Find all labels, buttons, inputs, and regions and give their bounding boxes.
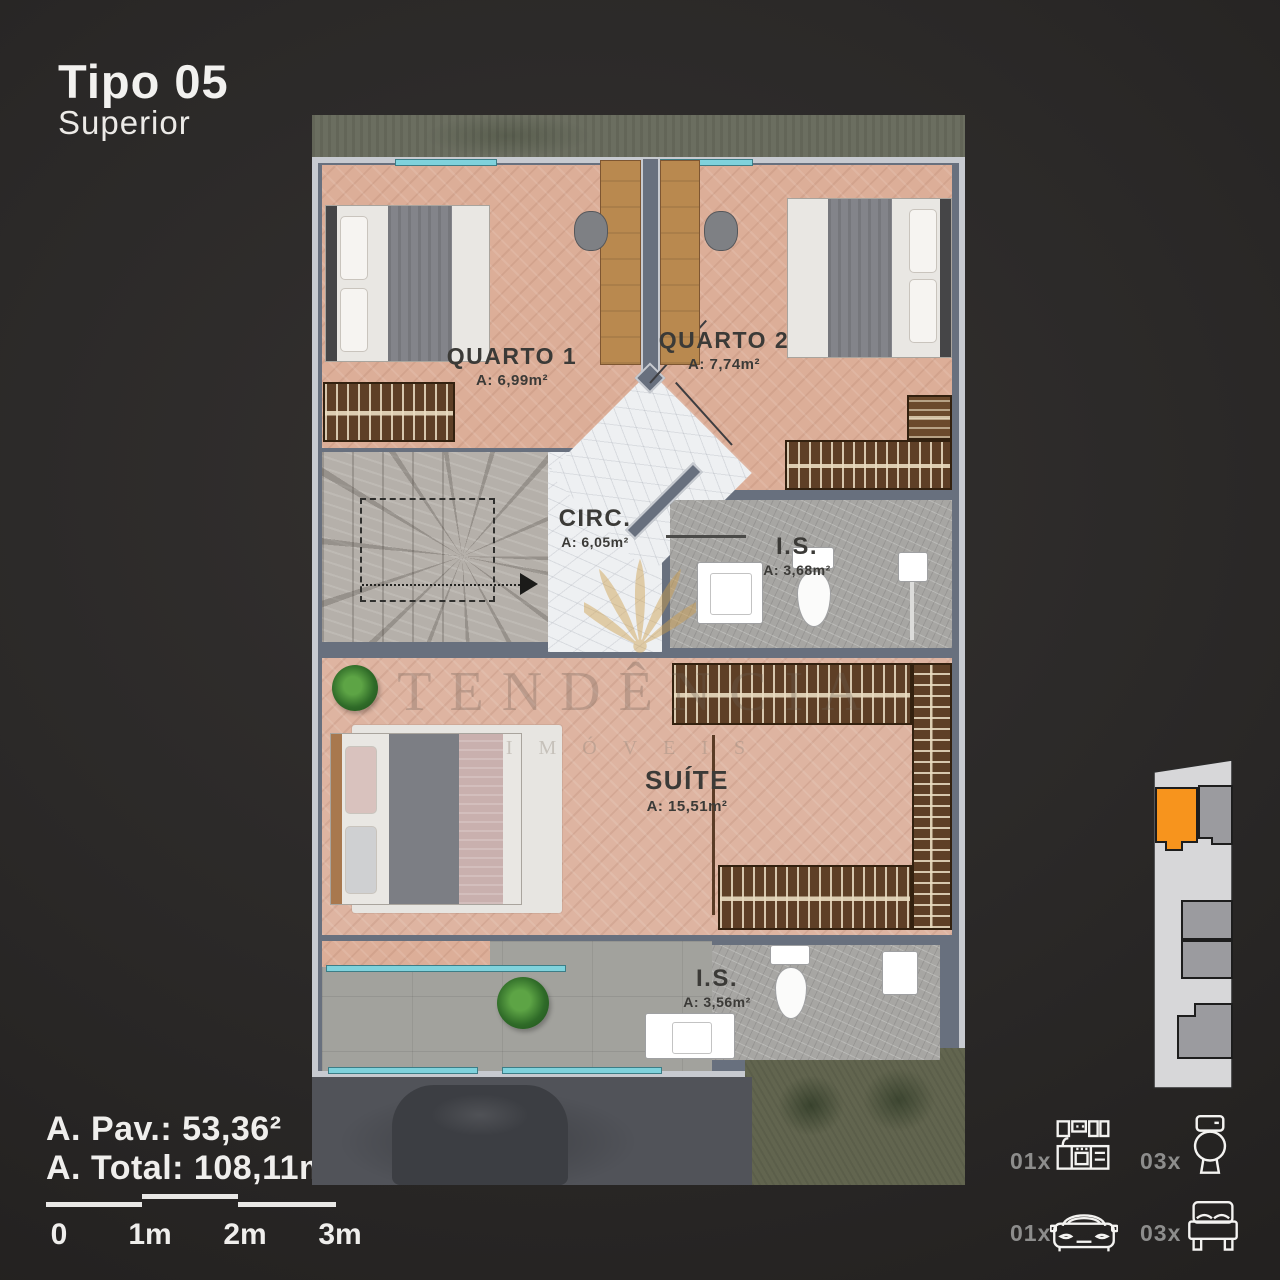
area-total: A. Total: 108,11m² [46, 1149, 342, 1188]
room-label-quarto1: QUARTO 1 A: 6,99m² [422, 343, 602, 389]
room-label-is-lower: I.S. A: 3,56m² [657, 965, 777, 1010]
bed-headboard [940, 199, 951, 357]
kitchen-icon [1056, 1118, 1110, 1172]
floor-plan: TENDÊNCIA IMÓVEIS QUARTO 1 A: 6,99m² QUA… [312, 115, 965, 1185]
key-plan [1140, 754, 1240, 1094]
kitchen-count: 01x [1010, 1148, 1051, 1175]
toilet-icon [1190, 1114, 1230, 1176]
bed-headboard [326, 206, 337, 361]
shower-is-lower [882, 951, 918, 995]
bed-pillow [340, 288, 368, 352]
shelf-quarto2 [907, 395, 952, 440]
watermark-shell-icon [584, 543, 696, 655]
shower-pole [910, 582, 914, 640]
area-summary: A. Pav.: 53,36² A. Total: 108,11m² [46, 1110, 342, 1188]
key-plan-unit [1182, 941, 1232, 978]
room-label-circ: CIRC. A: 6,05m² [535, 505, 655, 550]
window-top-left [395, 159, 497, 166]
stairs [322, 452, 548, 642]
area-pavement: A. Pav.: 53,36² [46, 1110, 342, 1149]
grass-patch-bottom-right [745, 1048, 965, 1185]
scale-segment [238, 1202, 336, 1207]
scale-label-0: 0 [37, 1218, 81, 1252]
plant-balcony [497, 977, 549, 1029]
plan-floor-subtitle: Superior [58, 106, 229, 140]
grass-strip-top [312, 115, 965, 157]
toilet-bowl [797, 571, 831, 627]
scale-label-2m: 2m [223, 1218, 267, 1252]
sink-is-lower [645, 1013, 735, 1059]
scale-bar: 0 1m 2m 3m [44, 1192, 364, 1256]
window-balcony-right [502, 1067, 662, 1074]
watermark-brand-name: TENDÊNCIA [312, 660, 965, 724]
sink-basin [672, 1022, 712, 1054]
toilet-tank [770, 945, 810, 965]
page-title-block: Tipo 05 Superior [58, 58, 229, 140]
toilet-bowl [775, 967, 807, 1019]
bed-pillow [345, 826, 377, 894]
page: Tipo 05 Superior [0, 0, 1280, 1280]
plan-type-title: Tipo 05 [58, 58, 229, 106]
car-icon [1050, 1204, 1118, 1254]
chair-quarto2 [704, 211, 738, 251]
key-plan-unit [1182, 901, 1232, 939]
key-plan-unit-highlighted [1156, 788, 1197, 850]
key-plan-unit [1199, 786, 1232, 844]
room-label-is-upper: I.S. A: 3,68m² [737, 533, 857, 578]
bed-quarto1 [325, 205, 490, 362]
window-suite-balcony [326, 965, 566, 972]
wardrobe-quarto1 [323, 382, 455, 442]
shower-is-upper [898, 552, 928, 582]
bed-count: 03x [1140, 1220, 1181, 1247]
sink-basin [710, 573, 752, 615]
bed-icon [1186, 1200, 1240, 1256]
scale-label-1m: 1m [128, 1218, 172, 1252]
scale-segment [46, 1202, 142, 1207]
toilet-count: 03x [1140, 1148, 1181, 1175]
bed-pillow [909, 209, 937, 273]
window-balcony-left [328, 1067, 478, 1074]
bed-blanket [828, 199, 892, 357]
bed-pillow [909, 279, 937, 343]
bed-blanket [388, 206, 452, 361]
scale-segment [142, 1194, 238, 1199]
towel-bar [666, 535, 746, 538]
closet-suite-bottom [718, 865, 912, 930]
wardrobe-quarto2 [785, 440, 952, 490]
closet-partition [712, 735, 715, 915]
feature-legend: 01x 03x 0 [1004, 1108, 1260, 1278]
room-label-quarto2: QUARTO 2 A: 7,74m² [634, 327, 814, 373]
watermark-brand-type: IMÓVEIS [312, 737, 965, 760]
chair-quarto1 [574, 211, 608, 251]
room-label-suite: SUÍTE A: 15,51m² [612, 765, 762, 815]
car-count: 01x [1010, 1220, 1051, 1247]
balcony-deck-strip [322, 941, 490, 967]
stair-dashed-outline [360, 498, 495, 602]
scale-label-3m: 3m [318, 1218, 362, 1252]
stair-direction-arrow [520, 573, 538, 595]
car-roof [392, 1085, 568, 1185]
stair-direction-line [362, 584, 520, 586]
bed-pillow [340, 216, 368, 280]
